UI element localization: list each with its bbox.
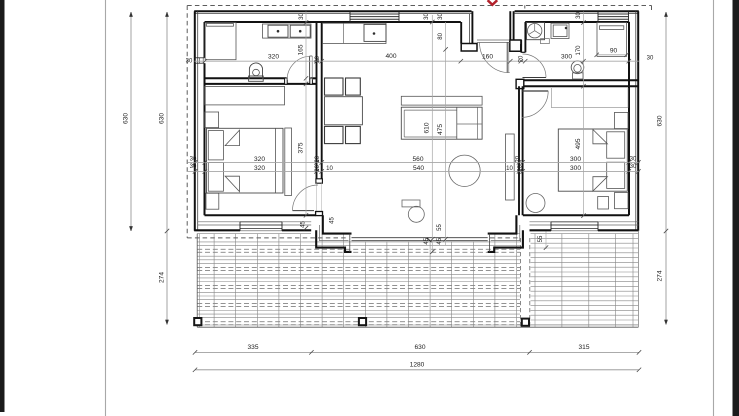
svg-text:165: 165 [298, 44, 305, 55]
svg-text:320: 320 [254, 165, 265, 172]
svg-text:30: 30 [647, 56, 654, 62]
svg-text:400: 400 [385, 53, 396, 60]
svg-text:30: 30 [190, 164, 197, 170]
svg-text:90: 90 [610, 47, 618, 54]
svg-text:495: 495 [575, 138, 582, 149]
svg-text:45: 45 [424, 237, 430, 244]
svg-text:170: 170 [576, 45, 582, 56]
svg-text:315: 315 [578, 344, 589, 351]
svg-text:20: 20 [315, 164, 321, 171]
svg-text:10: 10 [506, 166, 513, 172]
svg-text:274: 274 [657, 270, 664, 281]
svg-text:20: 20 [516, 155, 522, 162]
svg-text:630: 630 [414, 344, 425, 351]
svg-text:630: 630 [159, 113, 166, 124]
svg-text:320: 320 [254, 156, 265, 163]
svg-text:30: 30 [438, 13, 444, 20]
svg-text:20: 20 [519, 55, 525, 62]
svg-text:45: 45 [301, 221, 307, 228]
svg-text:335: 335 [247, 344, 258, 351]
svg-text:30: 30 [299, 13, 305, 20]
svg-text:610: 610 [423, 122, 430, 133]
svg-text:20: 20 [518, 164, 524, 171]
svg-text:30: 30 [190, 157, 197, 163]
svg-text:45: 45 [330, 217, 336, 224]
svg-text:560: 560 [412, 156, 423, 163]
svg-text:160: 160 [482, 54, 493, 61]
svg-text:475: 475 [437, 124, 444, 135]
svg-text:630: 630 [657, 115, 664, 126]
svg-text:630: 630 [123, 113, 130, 124]
svg-text:30: 30 [424, 13, 430, 20]
svg-text:300: 300 [570, 156, 581, 163]
svg-text:540: 540 [413, 165, 424, 172]
svg-text:55: 55 [437, 224, 443, 231]
svg-text:55: 55 [538, 235, 544, 242]
svg-text:375: 375 [298, 142, 305, 153]
svg-text:20: 20 [315, 55, 321, 62]
svg-text:30: 30 [630, 157, 637, 163]
svg-text:1280: 1280 [410, 362, 425, 369]
svg-text:30: 30 [186, 59, 193, 65]
svg-text:80: 80 [438, 32, 444, 39]
svg-text:274: 274 [159, 272, 166, 283]
svg-text:20: 20 [315, 155, 321, 162]
svg-text:10: 10 [326, 166, 333, 172]
svg-text:300: 300 [570, 165, 581, 172]
svg-text:300: 300 [561, 54, 572, 61]
svg-text:320: 320 [268, 54, 279, 61]
svg-text:30: 30 [630, 164, 637, 170]
svg-text:30: 30 [576, 12, 582, 19]
svg-text:45: 45 [437, 237, 443, 244]
